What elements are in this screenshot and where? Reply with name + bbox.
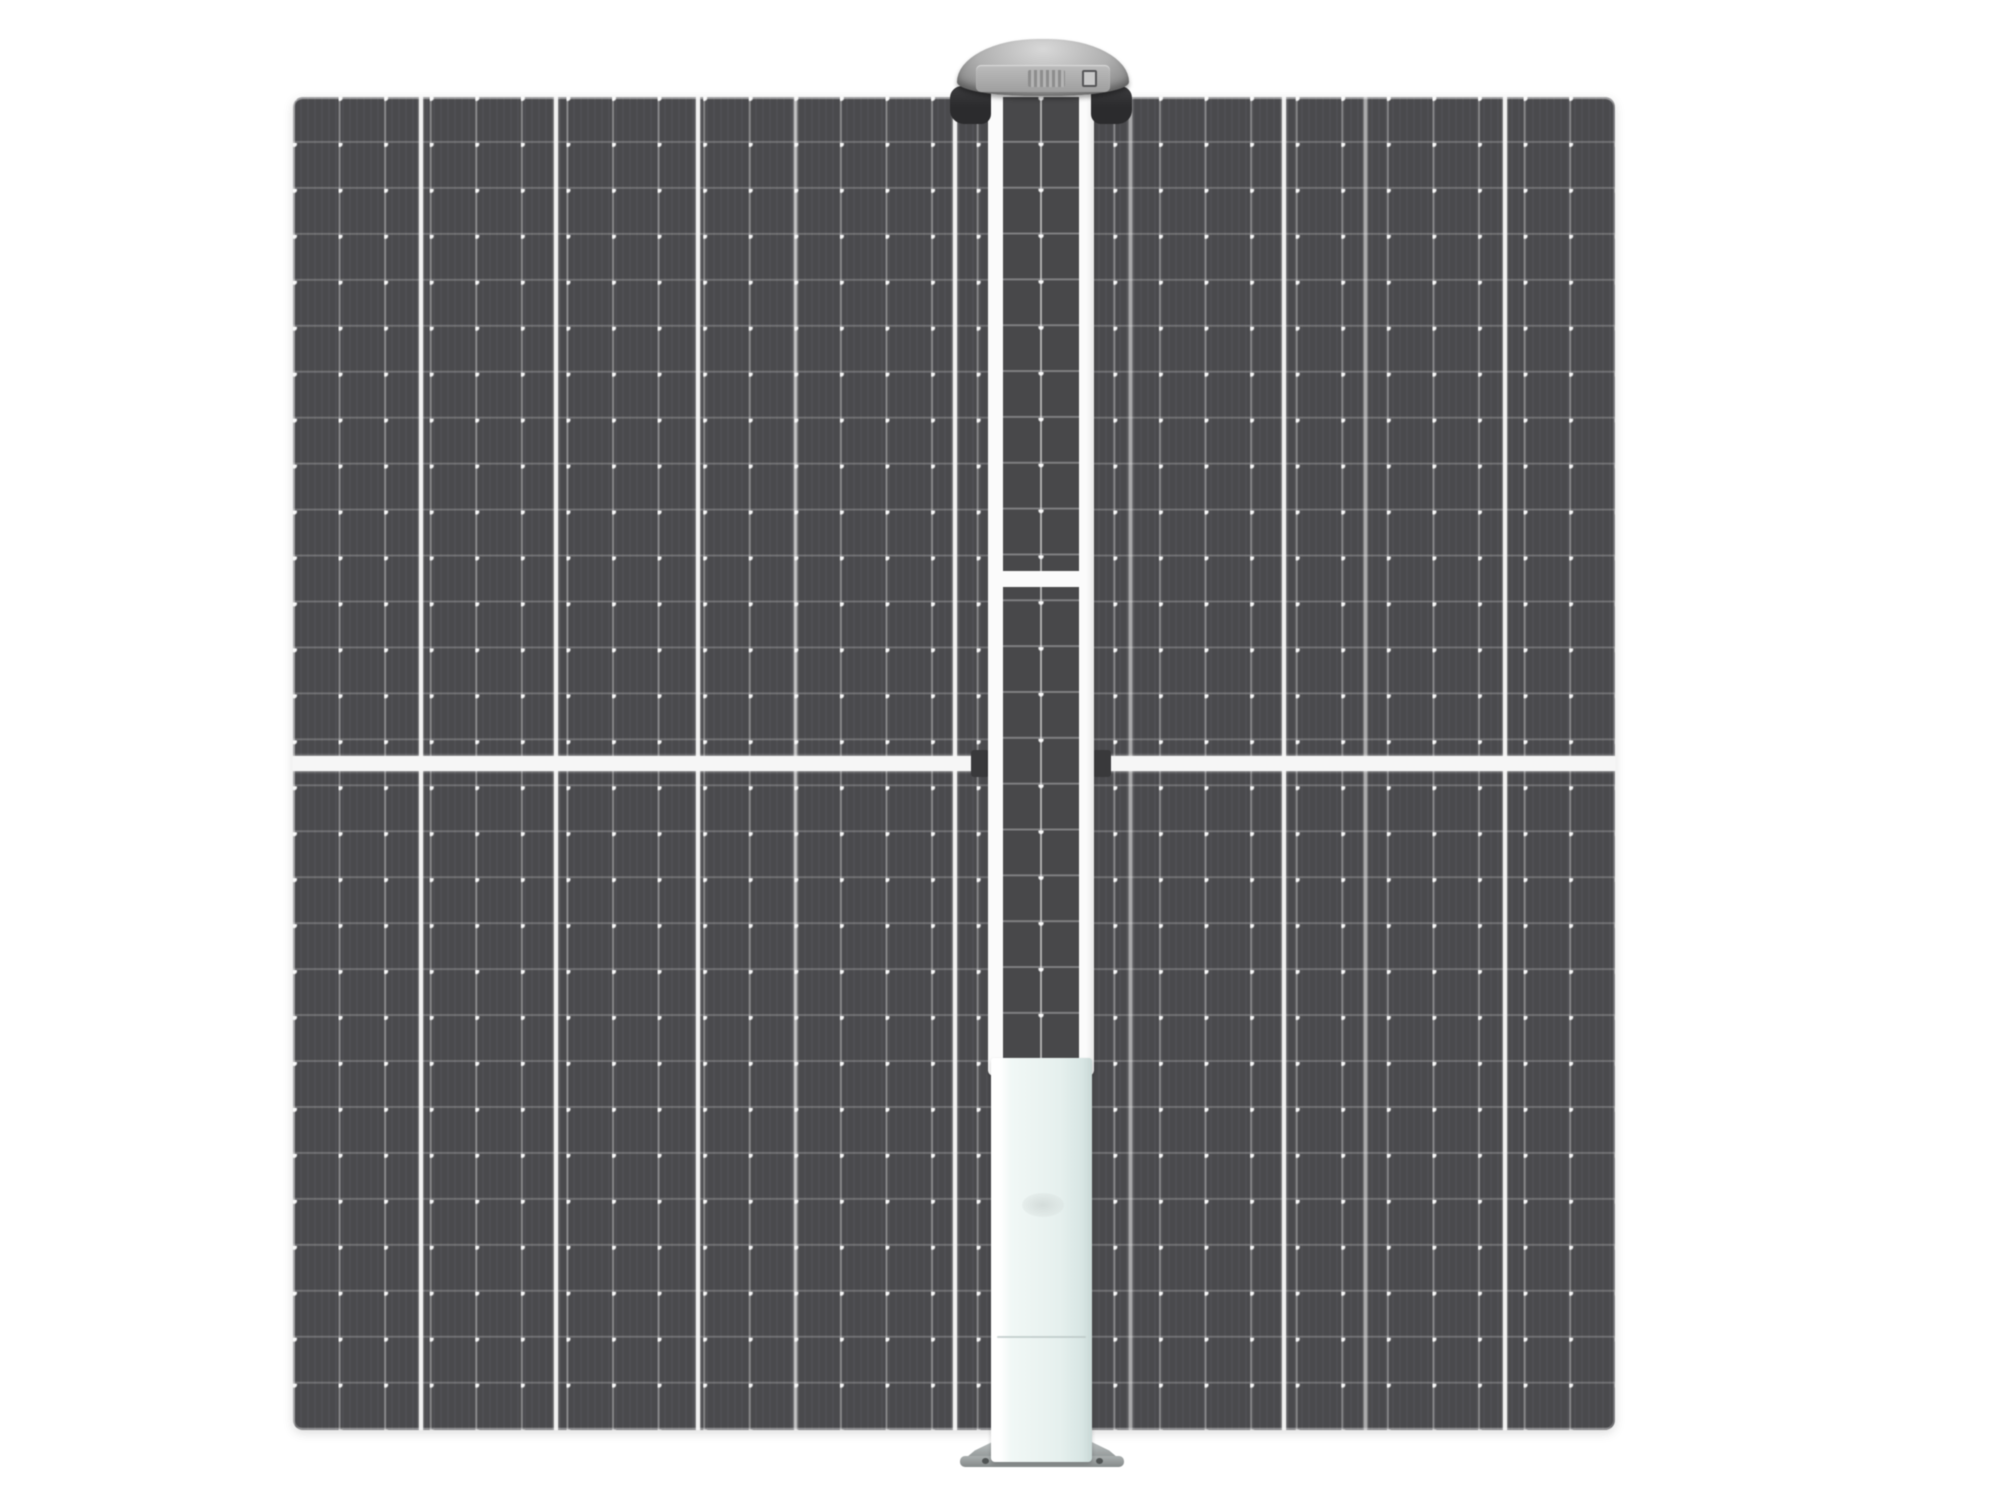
dome-vent-grille-icon (1028, 70, 1065, 87)
dome-camera-window-icon (1082, 70, 1097, 87)
dome-sensor-window-icon (1066, 71, 1079, 87)
base-screw-right (1096, 1458, 1103, 1464)
band-shadow-notch-right (1093, 750, 1111, 777)
panel-middle-divider-band (293, 756, 1615, 771)
dome-indicator-mark (988, 71, 996, 84)
base-screw-left (982, 1458, 989, 1464)
pole-strip-divider (1003, 571, 1079, 587)
dome-sensor-window-icon (1006, 70, 1023, 88)
product-photo-stage (0, 0, 2000, 1500)
battery-box-seam (997, 1336, 1086, 1338)
battery-box (991, 1058, 1092, 1462)
band-shadow-notch-left (971, 750, 989, 777)
battery-box-logo-smudge (1022, 1193, 1064, 1217)
